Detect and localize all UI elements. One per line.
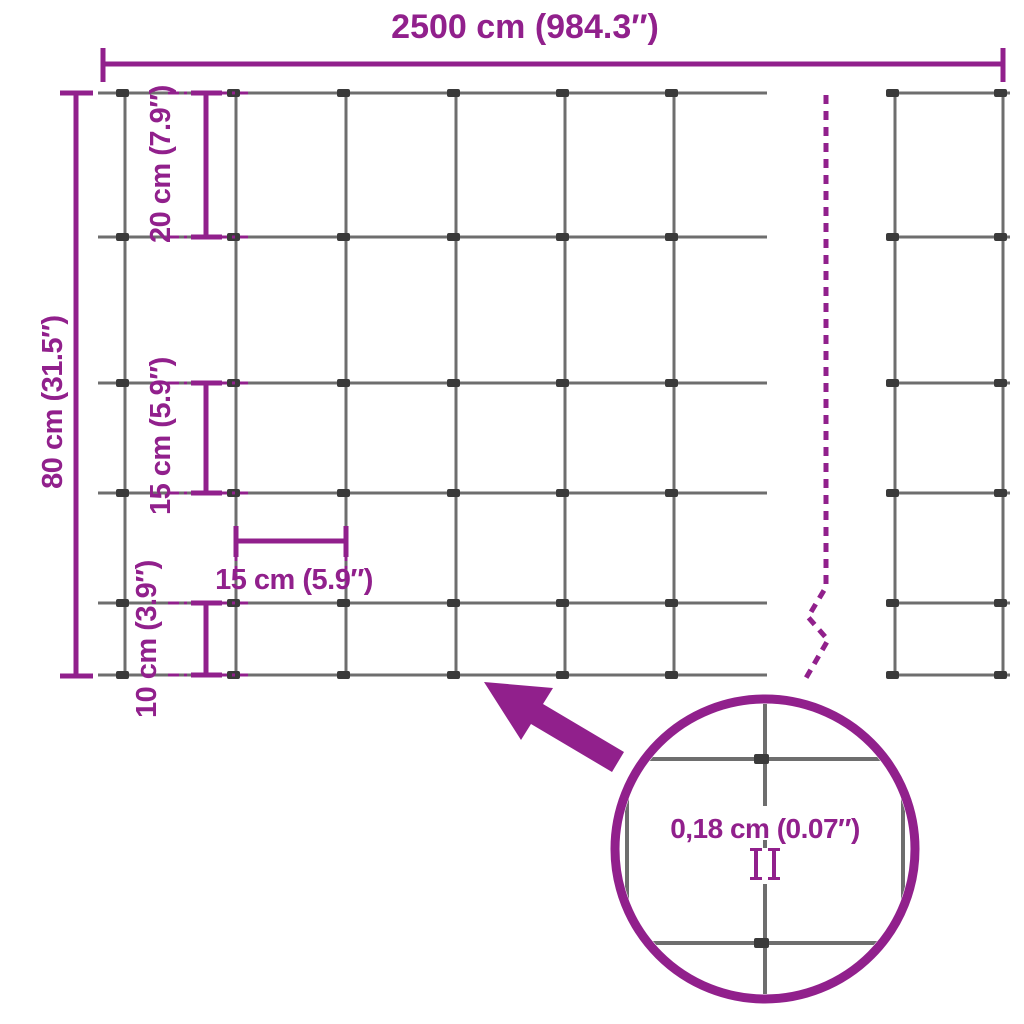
break-line	[806, 95, 828, 678]
dimension-cell-width	[236, 526, 346, 557]
magnifier-detail	[612, 698, 918, 1002]
label-total-height: 80 cm (31.5″)	[35, 252, 71, 552]
label-gap-top: 20 cm (7.9″)	[143, 44, 179, 284]
label-gap-bottom: 10 cm (3.9″)	[129, 519, 165, 759]
mesh-grid-right	[886, 89, 1010, 679]
dimension-gap-top	[191, 93, 222, 237]
label-cell-width: 15 cm (5.9″)	[144, 562, 444, 598]
dimension-total-width	[103, 48, 1003, 82]
label-wire-thickness: 0,18 cm (0.07″)	[565, 811, 965, 846]
fence-mesh-dimension-diagram: 2500 cm (984.3″) 80 cm (31.5″) 20 cm (7.…	[0, 0, 1024, 1024]
dimension-gap-middle	[191, 383, 222, 493]
label-total-width: 2500 cm (984.3″)	[175, 6, 875, 49]
dimension-gap-bottom	[191, 603, 222, 675]
callout-arrow-icon	[484, 682, 624, 772]
